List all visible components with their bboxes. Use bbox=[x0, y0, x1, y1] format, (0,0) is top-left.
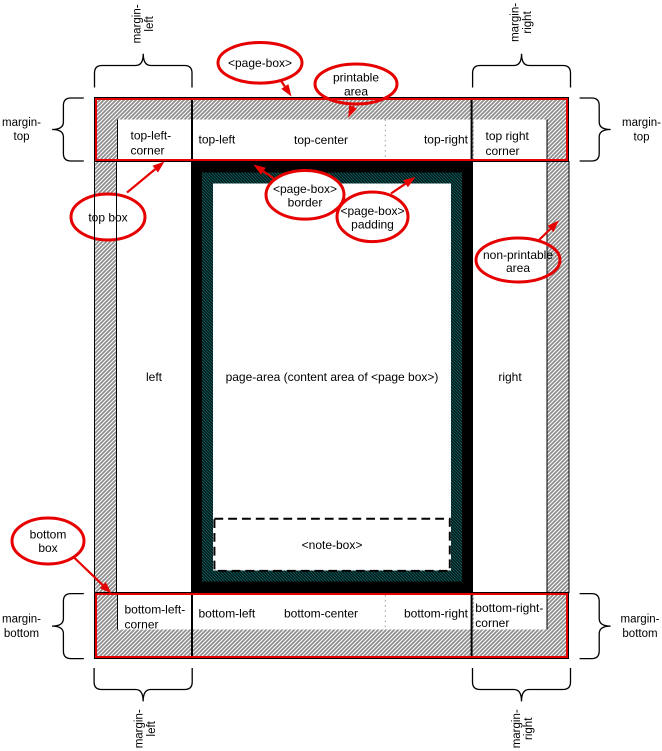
svg-text:corner: corner bbox=[475, 616, 509, 630]
svg-text:bottom-center: bottom-center bbox=[284, 606, 358, 620]
svg-text:top: top bbox=[634, 132, 650, 144]
svg-text:margin-: margin- bbox=[2, 614, 41, 626]
svg-text:left: left bbox=[144, 15, 156, 31]
svg-text:padding: padding bbox=[351, 218, 394, 232]
svg-text:margin-: margin- bbox=[131, 4, 143, 43]
svg-text:<page-box>: <page-box> bbox=[228, 56, 292, 70]
svg-text:<note-box>: <note-box> bbox=[302, 538, 363, 552]
svg-text:bottom-left-: bottom-left- bbox=[125, 602, 186, 616]
svg-text:box: box bbox=[38, 541, 57, 555]
svg-text:left: left bbox=[146, 370, 163, 384]
svg-text:corner: corner bbox=[125, 617, 159, 631]
svg-text:bottom-right: bottom-right bbox=[404, 606, 469, 620]
svg-text:non-printable: non-printable bbox=[483, 248, 553, 262]
svg-text:margin-: margin- bbox=[621, 614, 660, 626]
svg-text:border: border bbox=[288, 196, 323, 210]
svg-text:top-center: top-center bbox=[294, 133, 348, 147]
svg-text:left: left bbox=[146, 720, 158, 736]
svg-text:top-right: top-right bbox=[424, 132, 469, 146]
svg-text:corner: corner bbox=[131, 143, 165, 157]
svg-text:top-left: top-left bbox=[199, 132, 236, 146]
svg-text:margin-: margin- bbox=[134, 709, 146, 748]
svg-text:bottom: bottom bbox=[30, 528, 67, 542]
svg-text:margin-: margin- bbox=[509, 3, 521, 42]
svg-text:area: area bbox=[506, 261, 530, 275]
svg-text:bottom: bottom bbox=[4, 628, 39, 640]
svg-text:<page-box>: <page-box> bbox=[273, 182, 337, 196]
svg-text:<page-box>: <page-box> bbox=[340, 204, 404, 218]
svg-text:corner: corner bbox=[486, 144, 520, 158]
svg-text:top-left-: top-left- bbox=[131, 128, 172, 142]
svg-text:margin-: margin- bbox=[622, 117, 661, 129]
svg-text:bottom-right-: bottom-right- bbox=[475, 601, 543, 615]
svg-text:top: top bbox=[14, 131, 30, 143]
svg-text:right: right bbox=[498, 370, 522, 384]
svg-text:bottom: bottom bbox=[622, 628, 657, 640]
svg-text:margin-: margin- bbox=[2, 117, 41, 129]
svg-text:right: right bbox=[522, 10, 534, 33]
svg-text:bottom-left: bottom-left bbox=[199, 606, 256, 620]
svg-text:page-area (content area of <pa: page-area (content area of <page box>) bbox=[226, 370, 439, 384]
svg-text:area: area bbox=[344, 85, 368, 99]
svg-text:printable: printable bbox=[333, 71, 379, 85]
svg-text:top right: top right bbox=[486, 129, 530, 143]
svg-text:margin-: margin- bbox=[511, 709, 523, 748]
svg-text:right: right bbox=[523, 717, 535, 740]
svg-text:top box: top box bbox=[88, 211, 127, 225]
